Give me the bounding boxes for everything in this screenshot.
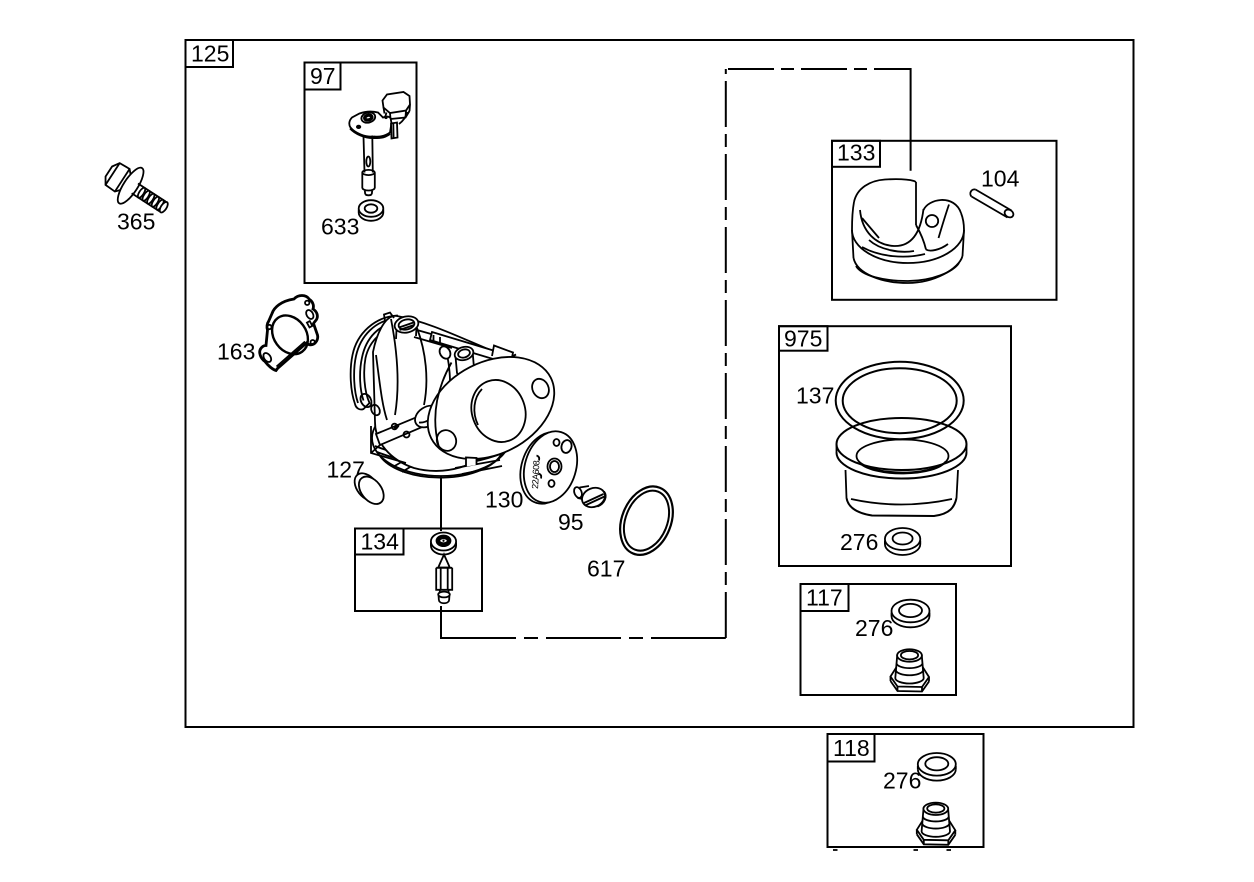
svg-text:104: 104: [981, 166, 1020, 192]
svg-text:633: 633: [321, 214, 359, 240]
svg-text:117: 117: [806, 585, 843, 611]
svg-text:617: 617: [587, 556, 625, 582]
svg-text:95: 95: [558, 509, 584, 535]
svg-text:137: 137: [796, 383, 834, 409]
svg-text:163: 163: [217, 339, 255, 365]
svg-text:22A608: 22A608: [530, 460, 541, 489]
svg-text:118: 118: [833, 735, 870, 761]
svg-text:276: 276: [855, 615, 893, 641]
svg-text:97: 97: [310, 63, 336, 89]
svg-text:975: 975: [784, 326, 822, 352]
svg-text:133: 133: [837, 140, 875, 166]
svg-text:130: 130: [485, 487, 523, 513]
svg-text:134: 134: [361, 529, 400, 555]
svg-text:125: 125: [191, 41, 229, 67]
svg-text:276: 276: [883, 768, 921, 794]
svg-text:276: 276: [840, 529, 878, 555]
svg-text:365: 365: [117, 209, 155, 235]
